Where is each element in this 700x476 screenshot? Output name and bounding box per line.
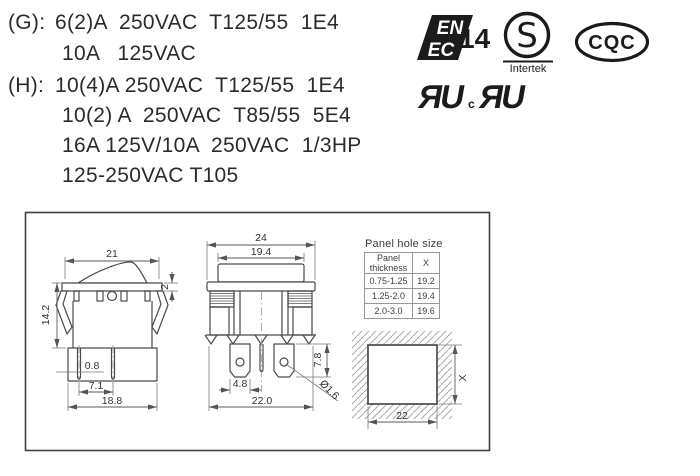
terminal-right — [274, 344, 294, 377]
dim-terminal-pitch: 7.1 — [89, 380, 104, 392]
dim-body-width: 18.8 — [102, 395, 123, 407]
enec-logo: EN EC 14 — [417, 15, 491, 61]
cul-recognized-mark-icon: ЯU — [477, 79, 527, 116]
bezel-plate — [62, 283, 162, 291]
panel-cutout-view: 22 X — [352, 331, 469, 429]
ul-recognized-mark-icon: ЯU — [416, 79, 466, 116]
mounting-wing-left — [56, 291, 72, 334]
dim-terminal-thickness: 0.8 — [85, 360, 100, 372]
intertek-name: Intertek — [510, 63, 547, 75]
rocker-actuator — [78, 262, 147, 283]
ul-marks: ЯU c ЯU — [416, 79, 527, 116]
intertek-logo: S Intertek — [503, 14, 553, 76]
dim-frame-width: 24 — [255, 232, 267, 244]
dim-body-width: 22.0 — [252, 395, 273, 407]
cqc-logo: CQC — [577, 24, 648, 61]
bezel-plate — [207, 282, 315, 291]
dim-height: 14.2 — [40, 305, 52, 326]
enec-text-ec: EC — [428, 40, 455, 61]
technical-drawing-canvas: EN EC 14 S Intertek CQC ЯU c ЯU 21 2 — [0, 0, 700, 476]
switch-side-view: 21 2 0.8 7.1 — [40, 248, 178, 411]
dim-bezel-height: 2 — [159, 284, 171, 290]
dim-terminal-height: 7.8 — [312, 353, 324, 368]
terminal-left — [230, 344, 250, 377]
rocker-cap — [218, 264, 304, 282]
dim-top-width: 21 — [106, 248, 118, 260]
dim-rocker-width: 19.4 — [251, 246, 272, 258]
switch-front-view: 24 19.4 — [205, 232, 342, 411]
ul-c-prefix: c — [468, 97, 475, 111]
pivot-hole — [108, 292, 117, 301]
dim-cutout-height: X — [457, 374, 469, 381]
dim-hole-diameter: Ø1.6 — [317, 378, 342, 403]
dim-cutout-width: 22 — [396, 410, 408, 422]
cqc-text: CQC — [588, 32, 635, 54]
enec-number: 14 — [459, 23, 491, 54]
mounting-wing-right — [152, 291, 168, 334]
intertek-s-letter: S — [516, 16, 538, 56]
cutout-square — [368, 345, 437, 404]
switch-body — [68, 348, 157, 381]
dim-terminal-width: 4.8 — [233, 378, 248, 390]
